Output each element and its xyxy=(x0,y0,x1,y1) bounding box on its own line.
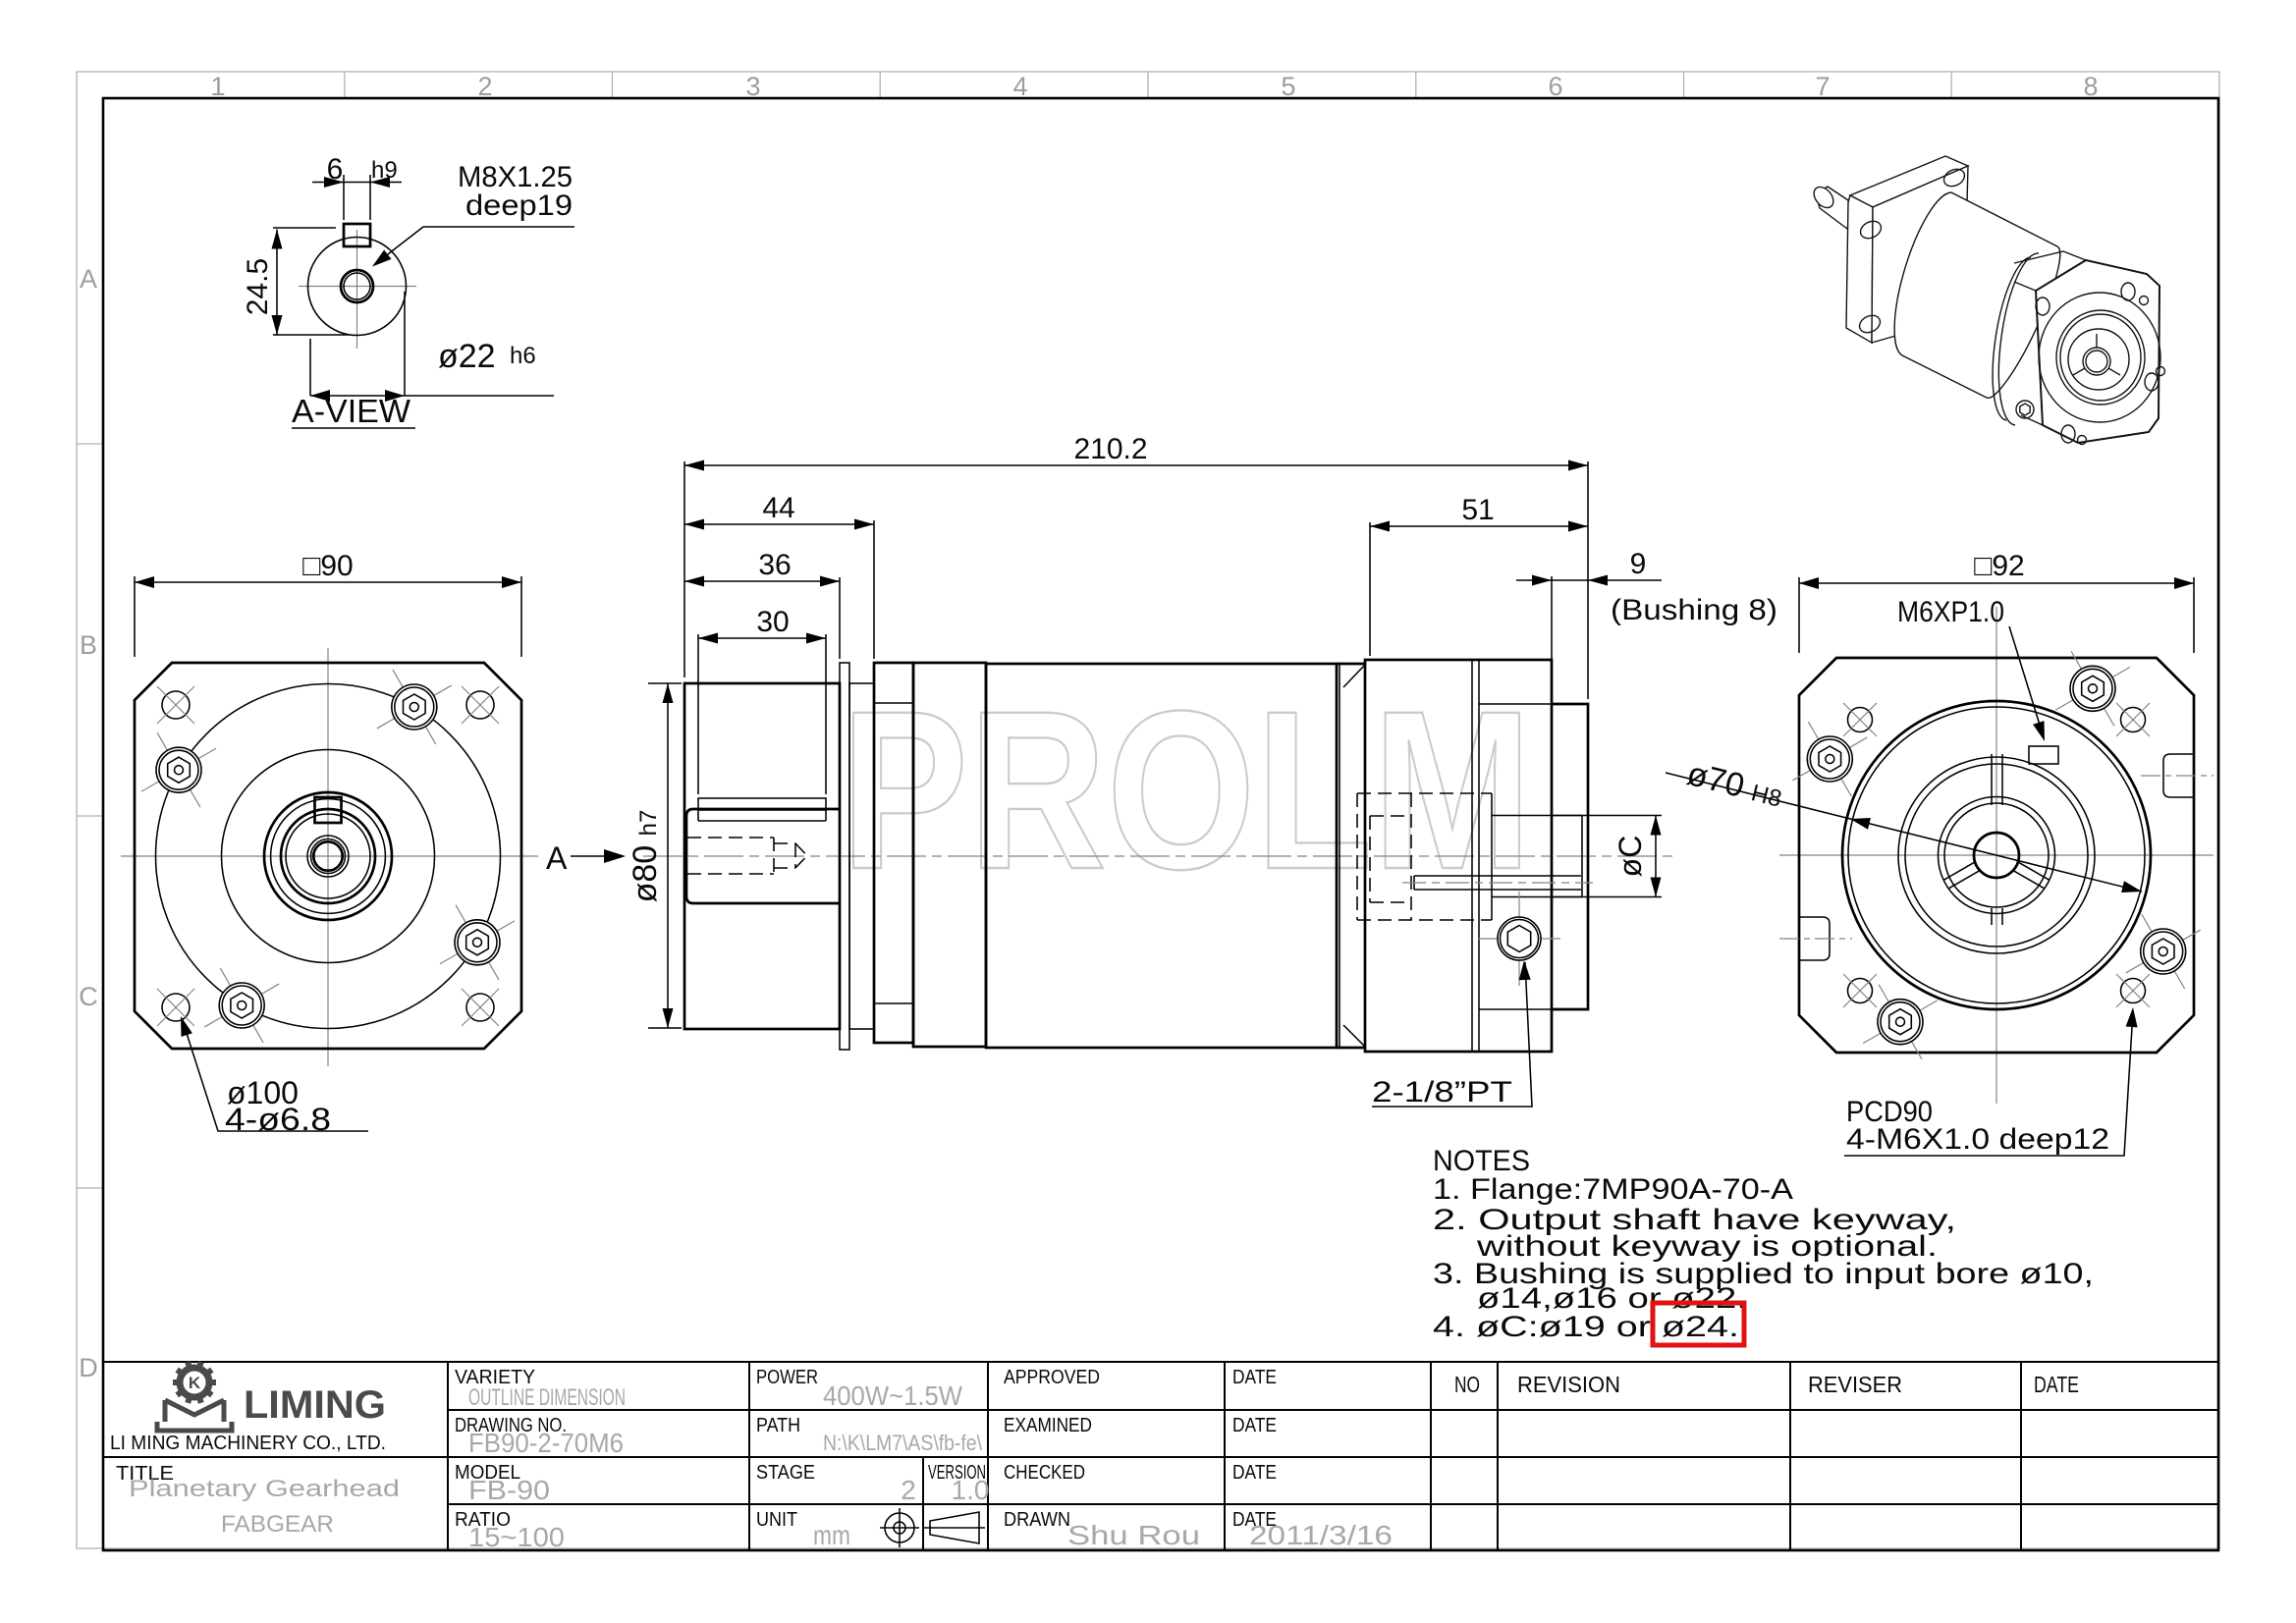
svg-text:□92: □92 xyxy=(1974,550,2025,582)
svg-text:NO: NO xyxy=(1454,1372,1480,1397)
svg-text:4-M6X1.0 deep12: 4-M6X1.0 deep12 xyxy=(1846,1123,2109,1156)
svg-text:DATE: DATE xyxy=(1232,1367,1277,1388)
svg-text:15~100: 15~100 xyxy=(468,1522,565,1552)
svg-text:LIMING: LIMING xyxy=(244,1383,386,1427)
svg-text:STAGE: STAGE xyxy=(756,1462,815,1484)
svg-text:36: 36 xyxy=(758,549,791,581)
svg-text:6: 6 xyxy=(327,153,344,186)
svg-text:44: 44 xyxy=(762,492,794,524)
svg-text:POWER: POWER xyxy=(756,1367,818,1388)
svg-text:A-VIEW: A-VIEW xyxy=(292,393,411,429)
svg-text:400W~1.5W: 400W~1.5W xyxy=(823,1380,963,1411)
svg-text:2-1/8”PT: 2-1/8”PT xyxy=(1372,1076,1512,1109)
svg-text:A: A xyxy=(546,840,568,876)
svg-text:N:\K\LM7\AS\fb-fe\: N:\K\LM7\AS\fb-fe\ xyxy=(823,1431,983,1455)
svg-text:□90: □90 xyxy=(302,550,354,582)
svg-text:øC: øC xyxy=(1613,836,1648,878)
svg-text:h6: h6 xyxy=(510,343,536,369)
svg-text:UNIT: UNIT xyxy=(756,1509,797,1531)
svg-text:3: 3 xyxy=(745,72,760,101)
svg-text:(Bushing 8): (Bushing 8) xyxy=(1611,594,1777,626)
svg-text:OUTLINE DIMENSION: OUTLINE DIMENSION xyxy=(468,1384,626,1411)
svg-text:4. øC:ø19 or ø24.: 4. øC:ø19 or ø24. xyxy=(1433,1311,1739,1343)
svg-text:1: 1 xyxy=(210,72,225,101)
svg-text:Planetary Gearhead: Planetary Gearhead xyxy=(129,1476,400,1502)
svg-text:LI MING MACHINERY CO., LTD.: LI MING MACHINERY CO., LTD. xyxy=(110,1433,386,1454)
svg-text:A: A xyxy=(80,264,97,294)
svg-text:FB90-2-70M6: FB90-2-70M6 xyxy=(468,1428,624,1458)
svg-text:9: 9 xyxy=(1630,548,1647,580)
svg-text:ø22: ø22 xyxy=(438,338,496,375)
svg-text:2: 2 xyxy=(901,1475,916,1505)
svg-text:Shu Rou: Shu Rou xyxy=(1067,1520,1200,1550)
svg-text:FB-90: FB-90 xyxy=(468,1475,550,1505)
svg-text:deep19: deep19 xyxy=(465,189,573,222)
svg-text:8: 8 xyxy=(2083,72,2098,101)
svg-text:DATE: DATE xyxy=(2034,1372,2079,1397)
svg-text:h9: h9 xyxy=(371,157,398,184)
svg-text:210.2: 210.2 xyxy=(1073,433,1147,465)
svg-text:2: 2 xyxy=(477,72,492,101)
svg-text:CHECKED: CHECKED xyxy=(1004,1462,1085,1484)
svg-text:5: 5 xyxy=(1281,72,1295,101)
svg-text:PATH: PATH xyxy=(756,1415,800,1436)
svg-text:mm: mm xyxy=(813,1520,850,1550)
svg-text:51: 51 xyxy=(1461,494,1494,526)
svg-text:6: 6 xyxy=(1548,72,1562,101)
svg-text:1. Flange:7MP90A-70-A: 1. Flange:7MP90A-70-A xyxy=(1433,1173,1793,1206)
svg-text:7: 7 xyxy=(1815,72,1830,101)
svg-text:1.0: 1.0 xyxy=(952,1475,990,1505)
svg-text:REVISER: REVISER xyxy=(1808,1372,1902,1397)
svg-text:4-ø6.8: 4-ø6.8 xyxy=(225,1102,331,1137)
svg-text:C: C xyxy=(79,982,98,1011)
svg-text:B: B xyxy=(80,630,97,660)
svg-text:4: 4 xyxy=(1012,72,1027,101)
svg-text:30: 30 xyxy=(756,606,789,638)
svg-text:DATE: DATE xyxy=(1232,1415,1277,1436)
svg-text:APPROVED: APPROVED xyxy=(1004,1367,1100,1388)
svg-text:PROLM: PROLM xyxy=(841,664,1532,916)
svg-text:M6XP1.0: M6XP1.0 xyxy=(1897,596,2004,628)
svg-text:24.5: 24.5 xyxy=(242,258,274,315)
svg-text:FABGEAR: FABGEAR xyxy=(221,1511,334,1538)
svg-text:REVISION: REVISION xyxy=(1517,1372,1620,1397)
svg-text:K: K xyxy=(189,1374,201,1392)
svg-text:DRAWN: DRAWN xyxy=(1004,1509,1070,1531)
svg-text:2011/3/16: 2011/3/16 xyxy=(1249,1520,1393,1550)
svg-text:EXAMINED: EXAMINED xyxy=(1004,1415,1092,1436)
svg-text:D: D xyxy=(79,1353,98,1382)
svg-text:DATE: DATE xyxy=(1232,1462,1277,1484)
